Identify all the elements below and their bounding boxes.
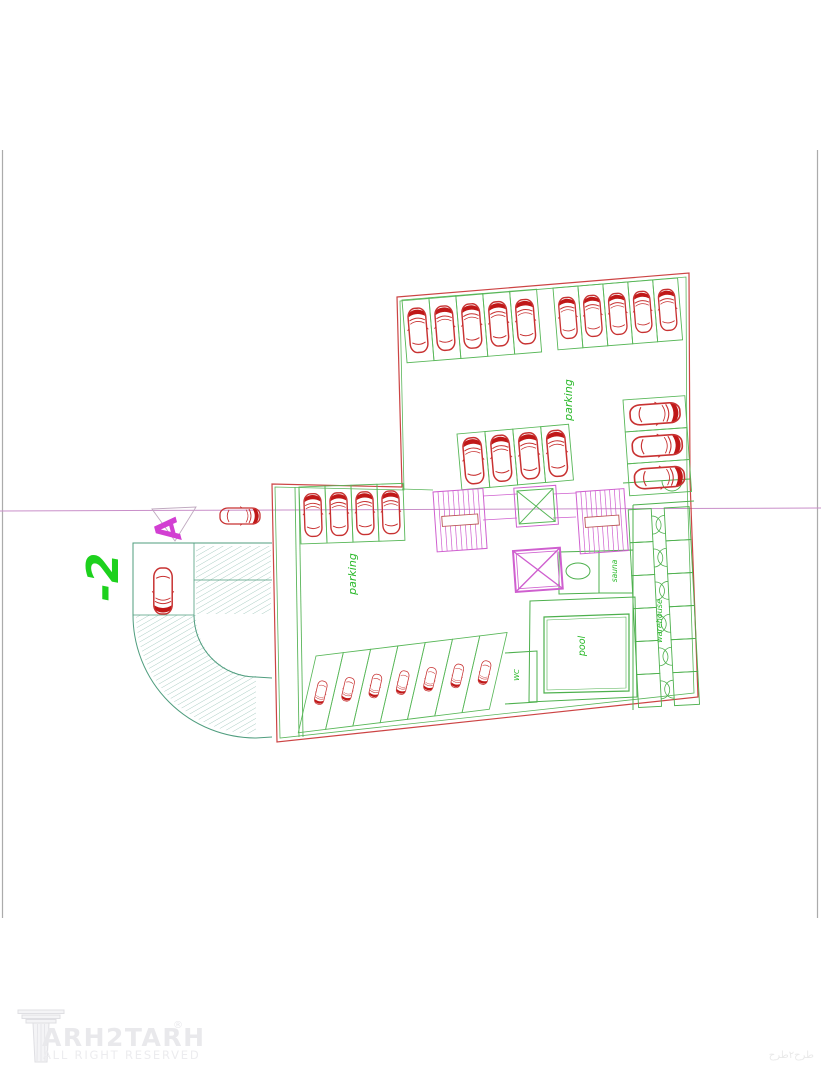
car: [328, 492, 350, 535]
warehouse-cell: [671, 638, 698, 672]
cell-door-arc: [657, 548, 667, 566]
car: [607, 293, 629, 335]
car: [582, 295, 604, 337]
warehouse-cell: [673, 671, 700, 705]
car: [557, 297, 579, 339]
parking-stall: [462, 633, 507, 713]
label-sauna: sauna: [610, 559, 619, 582]
cell-door-arc: [652, 516, 662, 534]
car: [220, 507, 260, 526]
car: [476, 660, 492, 686]
car: [395, 670, 411, 696]
cell-door-arc: [656, 515, 666, 533]
corner-watermark: طرح۲طرح: [769, 1050, 814, 1061]
car: [302, 493, 324, 536]
car: [406, 307, 430, 353]
stair-rail: [442, 514, 479, 526]
car: [313, 680, 329, 706]
parking-stall: [380, 643, 425, 723]
logo-registered: ®: [173, 1020, 183, 1031]
ramp-car: [152, 568, 174, 614]
warehouse-cell: [666, 540, 693, 574]
car: [354, 492, 376, 535]
car: [367, 673, 383, 699]
logo-tagline: ALL RIGHT RESERVED: [43, 1048, 201, 1062]
parking-stall: [653, 278, 683, 342]
cell-door-arc: [653, 549, 663, 567]
label-warehouse: warehouse: [655, 599, 664, 643]
parking-row-upper-hall-top-right: [553, 278, 683, 350]
warehouse-cell: [664, 507, 691, 541]
warehouse-strip-walls: [623, 479, 694, 710]
level-number: -2: [78, 553, 129, 602]
label-pool: pool: [577, 635, 588, 657]
car: [152, 568, 174, 614]
elevators-layer: [513, 485, 563, 592]
parking-row-lower-hall-bottom-angled: [289, 633, 516, 733]
parking-stall: [407, 639, 452, 719]
car: [632, 432, 683, 459]
car: [380, 491, 402, 534]
car: [487, 301, 511, 347]
basement-floor-plan: parking parking pool sauna warehouse WC …: [0, 0, 821, 1080]
warehouse-cell: [630, 542, 655, 576]
car: [461, 437, 487, 485]
entry-car: [220, 507, 260, 526]
cell-door-arc: [655, 582, 665, 600]
label-wc: WC: [513, 669, 521, 681]
parking-stall: [326, 649, 371, 729]
label-parking-lower: parking: [346, 553, 359, 596]
cell-door-arc: [659, 581, 669, 599]
parking-row-upper-hall-top-left: [402, 289, 542, 363]
parking-row-lower-hall-top: [299, 483, 405, 544]
stair-rail: [585, 515, 620, 527]
stair-east: [576, 489, 628, 554]
parking-stall: [353, 646, 398, 726]
label-parking-upper: parking: [562, 379, 575, 422]
car: [516, 432, 542, 480]
stair-west: [433, 489, 487, 552]
car: [631, 291, 653, 333]
car: [449, 663, 465, 689]
elevator-lower: [513, 548, 563, 592]
stairs-layer: [433, 489, 628, 554]
parking-stall: [298, 653, 343, 733]
car: [422, 666, 438, 692]
parking-row-upper-hall-middle: [457, 424, 573, 490]
car: [513, 299, 537, 345]
tub: [566, 563, 590, 579]
car: [489, 434, 515, 482]
spa-rooms: [559, 550, 633, 594]
cell-door-arc: [662, 647, 672, 665]
warehouse-cell: [628, 509, 653, 543]
section-cut-line: [0, 508, 821, 511]
car: [634, 464, 685, 491]
car: [433, 305, 457, 351]
elevator-upper: [514, 485, 559, 527]
car: [460, 303, 484, 349]
wc-room: [505, 651, 537, 704]
ramp: [133, 543, 272, 738]
logo: ARH2TARH ® ALL RIGHT RESERVED: [18, 1010, 206, 1062]
sheet-frame: [3, 150, 818, 918]
cell-door-arc: [658, 647, 668, 665]
car: [656, 289, 678, 331]
car: [340, 677, 356, 703]
car: [629, 400, 680, 427]
corridor-walls: [483, 493, 576, 520]
warehouse-cell: [635, 640, 660, 674]
car: [544, 430, 570, 478]
parking-stall: [435, 636, 480, 716]
